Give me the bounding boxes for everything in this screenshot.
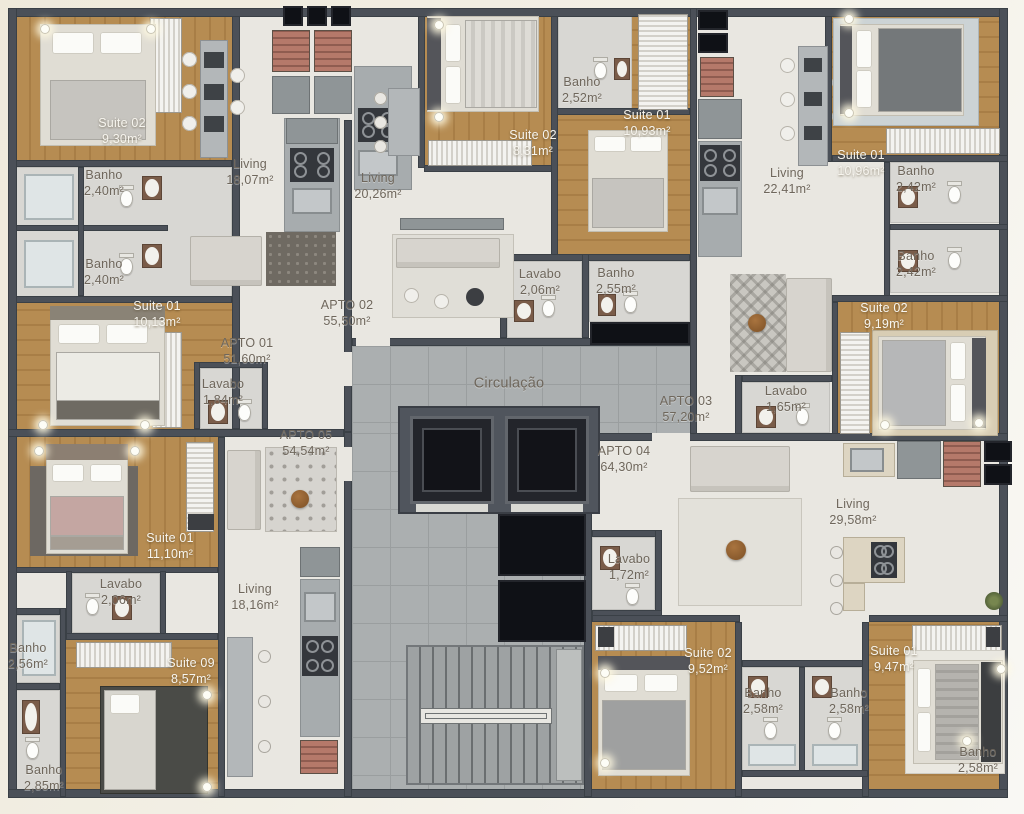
room-area: 8,57m² (167, 671, 214, 687)
room-area: 2,40m² (84, 272, 124, 288)
room-area: 2,58m² (743, 701, 783, 717)
room-label-25: Suite 0111,10m² (146, 530, 193, 563)
room-label-19: Circulação (474, 375, 545, 394)
room-label-29: Suite 098,57m² (167, 655, 214, 688)
room-area: 11,10m² (146, 546, 193, 562)
room-label-6: Suite 028,31m² (509, 127, 556, 160)
room-label-12: Banho2,42m² (896, 248, 936, 281)
room-area: 9,30m² (98, 131, 145, 147)
room-area: 2,52m² (562, 90, 602, 106)
room-area: 1,72m² (608, 567, 650, 583)
room-label-35: Suite 019,47m² (870, 643, 917, 676)
room-area: 2,85m² (24, 778, 64, 794)
room-area: 2,40m² (84, 183, 124, 199)
room-label-24: Living29,58m² (829, 496, 876, 529)
room-label-30: Banho2,85m² (24, 762, 64, 795)
room-area: 2,58m² (958, 760, 998, 776)
room-area: 20,26m² (354, 186, 401, 202)
room-area: 64,30m² (598, 459, 651, 475)
room-label-15: Banho2,55m² (596, 265, 636, 298)
room-label-2: Banho2,40m² (84, 256, 124, 289)
room-label-8: Suite 0110,93m² (623, 107, 670, 140)
room-area: 2,06m² (100, 592, 142, 608)
room-label-18: Lavabo1,84m² (202, 376, 244, 409)
room-area: 2,42m² (896, 264, 936, 280)
room-area: 10,96m² (837, 163, 884, 179)
room-label-14: Lavabo2,06m² (519, 266, 561, 299)
room-label-21: APTO 0554,54m² (280, 427, 333, 460)
room-area: 29,58m² (829, 512, 876, 528)
room-area: 9,47m² (870, 659, 917, 675)
room-area: 22,41m² (763, 181, 810, 197)
room-area: 55,50m² (321, 313, 374, 329)
room-area: 57,20m² (660, 409, 713, 425)
labels-layer: Suite 029,30m²Banho2,40m²Banho2,40m²Suit… (0, 0, 1024, 814)
room-label-22: APTO 0464,30m² (598, 443, 651, 476)
room-label-20: APTO 0357,20m² (660, 393, 713, 426)
room-area: 2,56m² (8, 656, 48, 672)
room-label-32: Suite 029,52m² (684, 645, 731, 678)
room-area: 54,54m² (280, 443, 333, 459)
room-area: 2,55m² (596, 281, 636, 297)
room-label-5: Living20,26m² (354, 170, 401, 203)
floor-plan: Suite 029,30m²Banho2,40m²Banho2,40m²Suit… (0, 0, 1024, 814)
room-area: 1,65m² (765, 399, 807, 415)
room-label-17: APTO 0151,60m² (221, 335, 274, 368)
room-area: 18,07m² (226, 172, 273, 188)
room-area: 10,93m² (623, 123, 670, 139)
room-label-23: Lavabo1,65m² (765, 383, 807, 416)
room-label-0: Suite 029,30m² (98, 115, 145, 148)
room-label-16: APTO 0255,50m² (321, 297, 374, 330)
room-label-9: Living22,41m² (763, 165, 810, 198)
room-label-4: Living18,07m² (226, 156, 273, 189)
room-label-3: Suite 0110,13m² (133, 298, 180, 331)
room-label-13: Suite 029,19m² (860, 300, 907, 333)
room-label-36: Banho2,58m² (958, 744, 998, 777)
room-area: 10,13m² (133, 314, 180, 330)
room-label-28: Banho2,56m² (8, 640, 48, 673)
room-label-11: Banho2,42m² (896, 163, 936, 196)
room-label-26: Lavabo2,06m² (100, 576, 142, 609)
room-area: 2,42m² (896, 179, 936, 195)
room-label-31: Lavabo1,72m² (608, 551, 650, 584)
room-area: 8,31m² (509, 143, 556, 159)
room-label-7: Banho2,52m² (562, 74, 602, 107)
room-area: 51,60m² (221, 351, 274, 367)
room-label-34: Banho2,58m² (829, 685, 869, 718)
room-area: 2,06m² (519, 282, 561, 298)
room-label-1: Banho2,40m² (84, 167, 124, 200)
room-area: 1,84m² (202, 392, 244, 408)
room-area: 9,19m² (860, 316, 907, 332)
room-label-33: Banho2,58m² (743, 685, 783, 718)
room-area: 18,16m² (231, 597, 278, 613)
room-area: 9,52m² (684, 661, 731, 677)
room-label-27: Living18,16m² (231, 581, 278, 614)
room-area: 2,58m² (829, 701, 869, 717)
room-label-10: Suite 0110,96m² (837, 147, 884, 180)
